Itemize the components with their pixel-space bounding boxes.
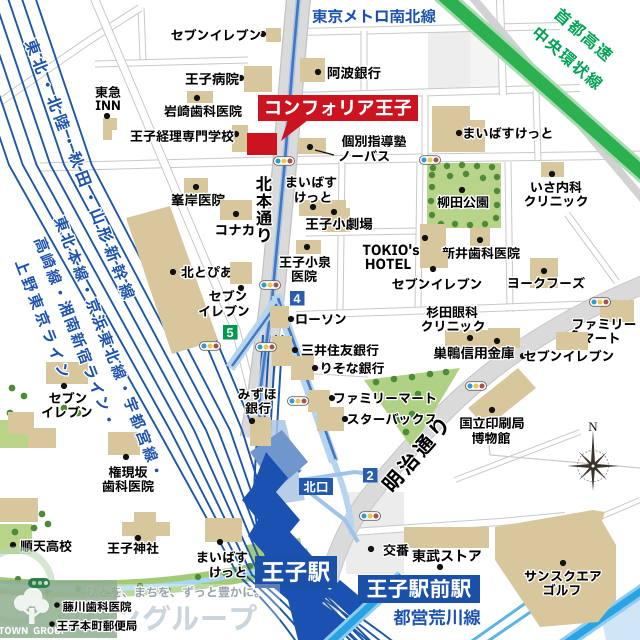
svg-text:N: N xyxy=(588,419,598,434)
